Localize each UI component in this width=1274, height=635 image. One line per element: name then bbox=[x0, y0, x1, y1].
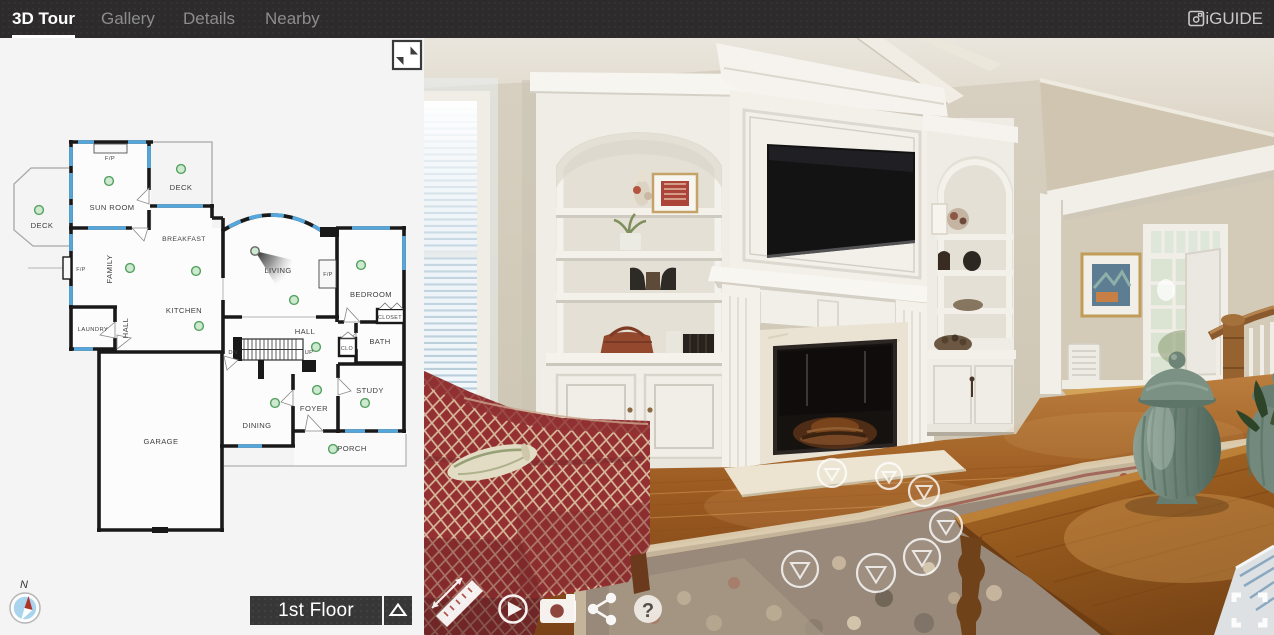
svg-text:UP: UP bbox=[305, 350, 314, 356]
svg-text:F/P: F/P bbox=[76, 267, 86, 273]
svg-text:SUN ROOM: SUN ROOM bbox=[90, 203, 135, 212]
svg-text:HALL: HALL bbox=[295, 327, 316, 336]
svg-text:F/P: F/P bbox=[323, 272, 333, 278]
svg-text:DN: DN bbox=[228, 350, 237, 356]
svg-text:BEDROOM: BEDROOM bbox=[350, 290, 392, 299]
svg-text:FAMILY: FAMILY bbox=[105, 255, 114, 284]
svg-text:DECK: DECK bbox=[170, 183, 193, 192]
svg-text:N: N bbox=[20, 579, 28, 591]
svg-text:DINING: DINING bbox=[243, 421, 272, 430]
svg-text:CLOSET: CLOSET bbox=[378, 315, 402, 321]
svg-text:BATH: BATH bbox=[369, 337, 390, 346]
svg-text:LIVING: LIVING bbox=[264, 266, 291, 275]
svg-text:DECK: DECK bbox=[31, 221, 54, 230]
svg-text:?: ? bbox=[642, 600, 654, 622]
svg-text:F/P: F/P bbox=[105, 156, 115, 162]
svg-text:HALL: HALL bbox=[121, 318, 130, 339]
svg-text:BREAKFAST: BREAKFAST bbox=[162, 236, 206, 243]
svg-text:GARAGE: GARAGE bbox=[144, 437, 179, 446]
svg-text:CLO: CLO bbox=[341, 346, 353, 352]
svg-text:PORCH: PORCH bbox=[337, 444, 366, 453]
svg-text:KITCHEN: KITCHEN bbox=[166, 306, 202, 315]
svg-text:LAUNDRY: LAUNDRY bbox=[78, 327, 108, 333]
svg-text:FOYER: FOYER bbox=[300, 404, 328, 413]
svg-text:STUDY: STUDY bbox=[356, 386, 384, 395]
